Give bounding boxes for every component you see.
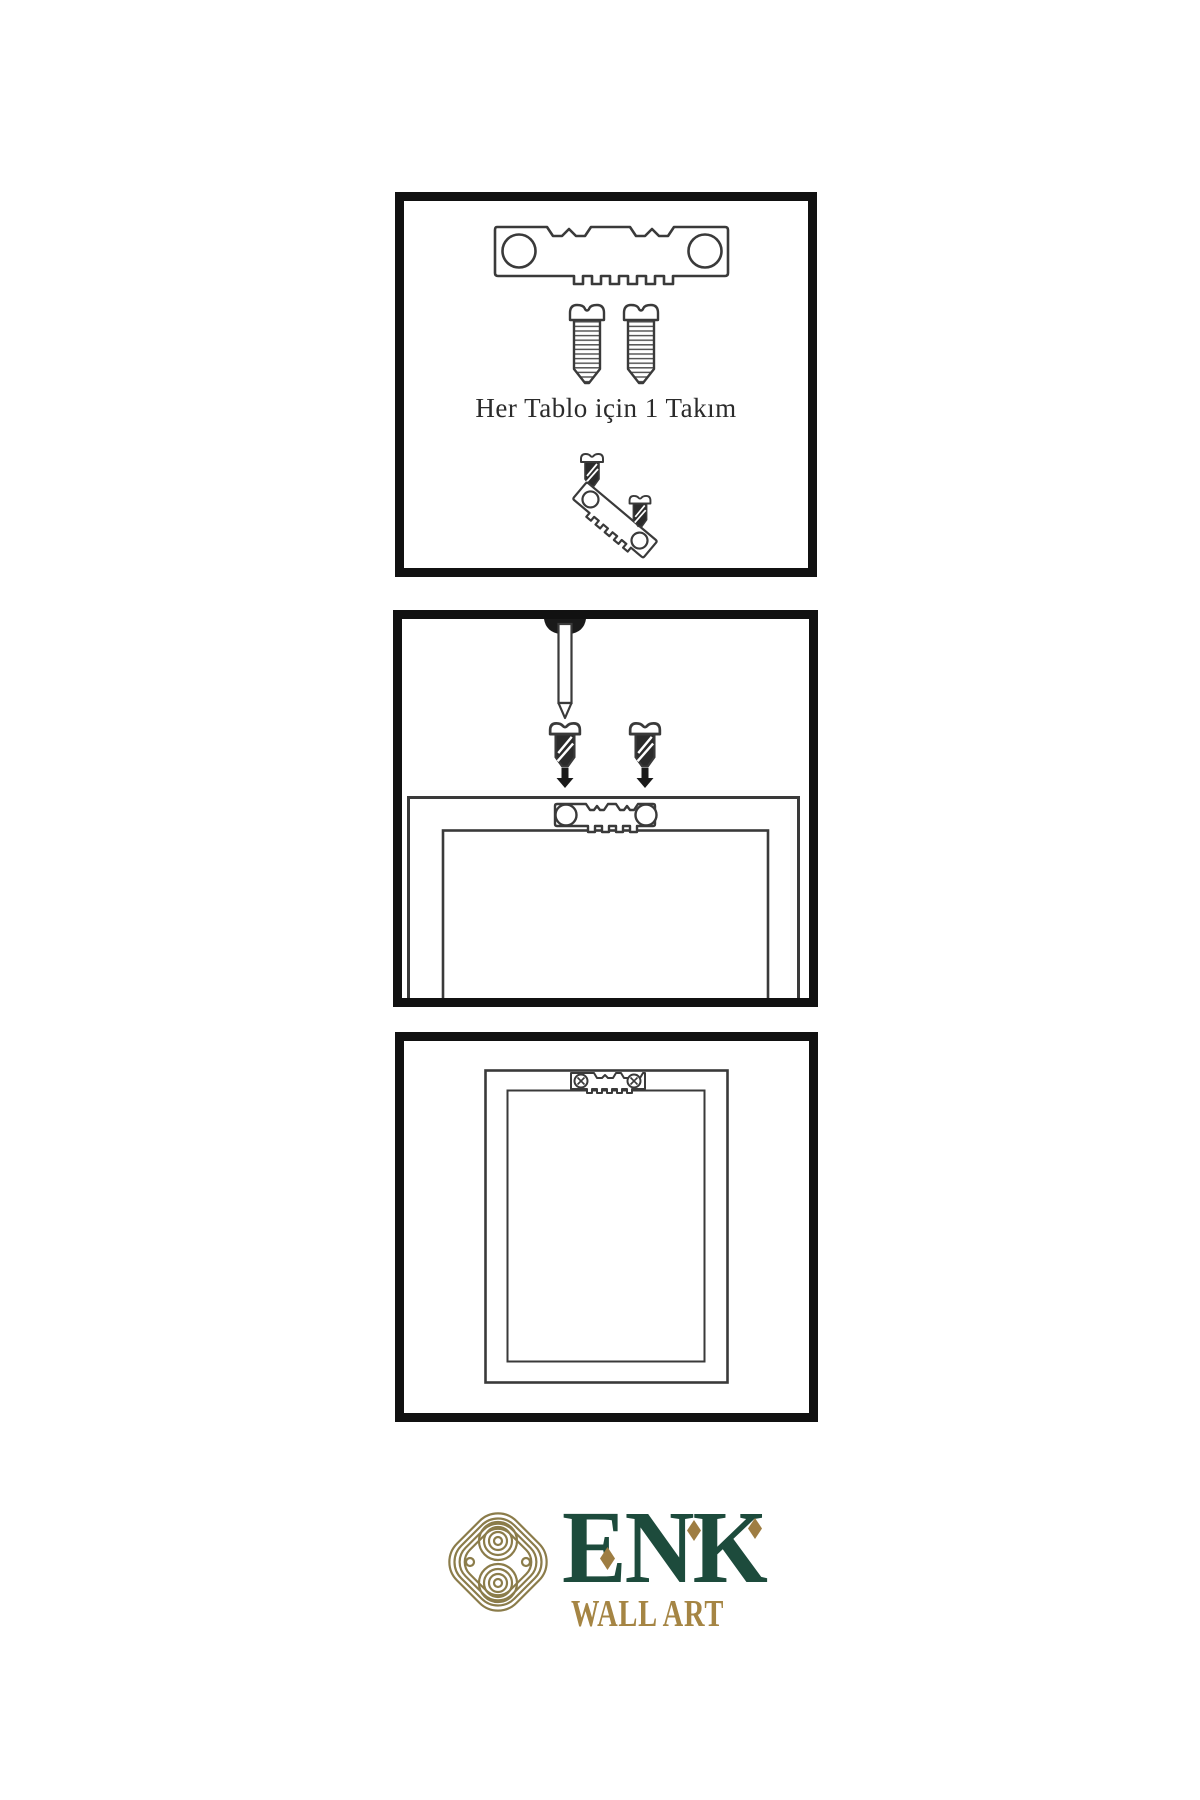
wall-nail-icon [544,619,586,718]
brand-tagline: WALL ART [571,1595,766,1633]
arrow-down-icon [637,768,654,788]
step3-panel [395,1032,818,1422]
instruction-sheet: Her Tablo için 1 Takım [0,0,1200,1800]
knot-logo-icon [438,1502,558,1622]
hardware-kit-illustration [404,201,808,568]
arrow-down-icon [557,768,574,788]
sawtooth-hanger-icon [495,227,728,284]
mounting-illustration [402,619,809,998]
step1-panel: Her Tablo için 1 Takım [395,192,817,577]
small-screw-icon [581,454,603,486]
screw-icon [570,305,604,383]
mounted-frame-illustration [404,1041,809,1413]
step1-caption: Her Tablo için 1 Takım [404,393,808,423]
step2-panel [393,610,818,1007]
dark-screw-icon [630,723,660,766]
dark-screw-icon [550,723,580,766]
brand-name: ENK [562,1496,804,1600]
frame-back-icon [486,1071,728,1383]
screw-icon [624,305,658,383]
